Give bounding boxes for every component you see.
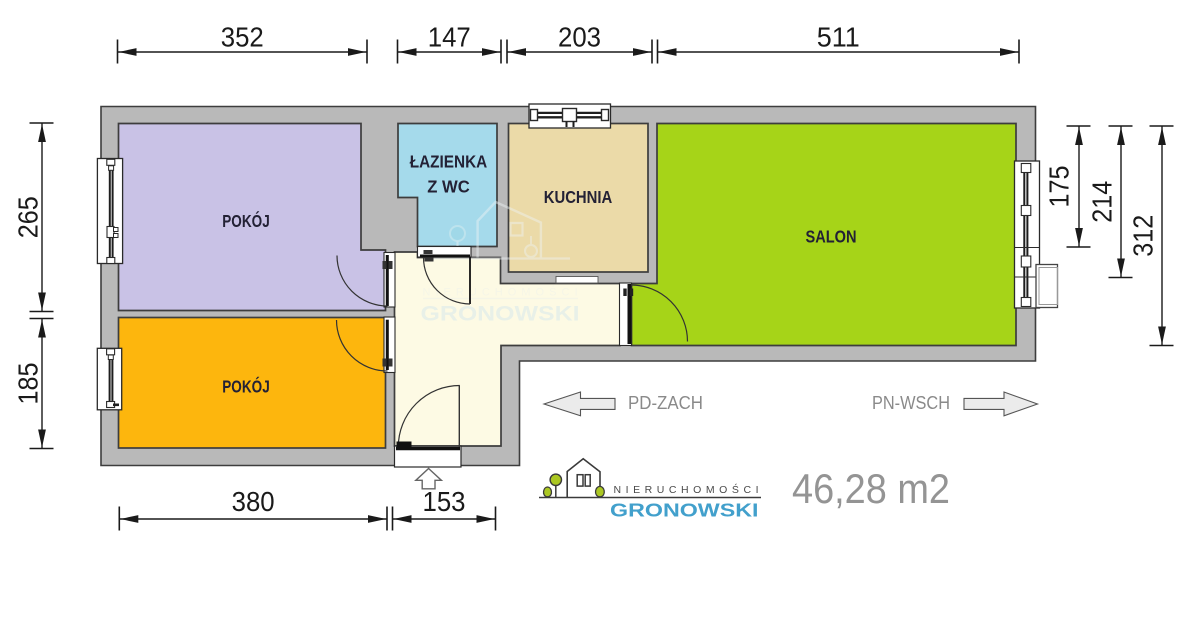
svg-text:352: 352 — [221, 22, 264, 53]
svg-text:203: 203 — [558, 22, 601, 53]
svg-text:214: 214 — [1086, 181, 1117, 223]
svg-text:511: 511 — [817, 22, 860, 53]
svg-text:153: 153 — [423, 486, 466, 517]
svg-text:GRONOWSKI: GRONOWSKI — [421, 303, 580, 326]
svg-text:185: 185 — [12, 363, 43, 405]
svg-text:SALON: SALON — [806, 227, 857, 247]
svg-text:Z WC: Z WC — [427, 177, 470, 197]
svg-text:175: 175 — [1043, 166, 1074, 208]
svg-text:POKÓJ: POKÓJ — [222, 210, 270, 231]
svg-text:NIERUCHOMOŚCI: NIERUCHOMOŚCI — [423, 286, 578, 299]
svg-text:GRONOWSKI: GRONOWSKI — [610, 500, 759, 521]
svg-text:312: 312 — [1127, 215, 1158, 257]
svg-text:NIERUCHOMOŚCI: NIERUCHOMOŚCI — [614, 483, 759, 496]
svg-text:PN-WSCH: PN-WSCH — [872, 393, 950, 413]
svg-text:KUCHNIA: KUCHNIA — [544, 187, 613, 207]
svg-text:265: 265 — [12, 196, 43, 238]
svg-text:ŁAZIENKA: ŁAZIENKA — [410, 152, 488, 172]
svg-text:46,28 m2: 46,28 m2 — [792, 465, 950, 512]
svg-text:380: 380 — [232, 486, 275, 517]
svg-text:PD-ZACH: PD-ZACH — [628, 393, 703, 413]
svg-text:POKÓJ: POKÓJ — [222, 376, 270, 397]
svg-text:147: 147 — [428, 22, 471, 53]
